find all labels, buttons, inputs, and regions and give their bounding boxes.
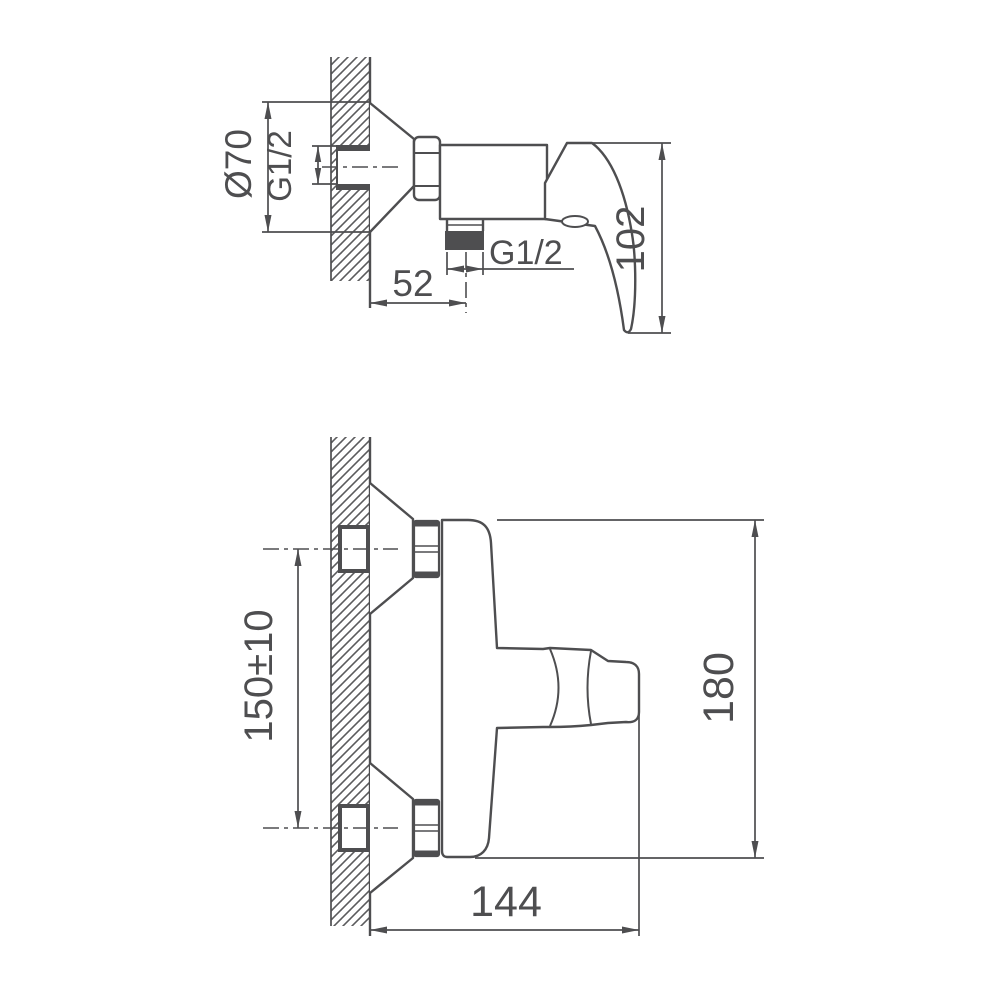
label-overall-height: 180	[695, 652, 743, 724]
upper-hex-adapter	[414, 521, 439, 577]
hex-nut	[414, 137, 440, 200]
label-overall-depth: 144	[470, 878, 542, 926]
side-view: Ø70 G1/2 102 52	[218, 57, 671, 333]
dim-inlet-thread: G1/2	[261, 130, 338, 202]
label-handle-height: 102	[609, 206, 653, 273]
label-inlet-spacing: 150±10	[237, 609, 281, 742]
shower-outlet	[445, 219, 484, 250]
label-outlet-thread: G1/2	[489, 234, 563, 272]
front-view: 150±10 180 144	[237, 437, 764, 936]
wall-hatch	[331, 437, 370, 926]
label-inlet-thread: G1/2	[261, 130, 298, 202]
shower-mixer-dimension-drawing: Ø70 G1/2 102 52	[0, 0, 1000, 1000]
lower-hex-adapter	[414, 800, 439, 856]
technical-drawing-page: Ø70 G1/2 102 52	[0, 0, 1000, 1000]
mixer-body	[440, 145, 547, 219]
handle-screw-cover	[562, 216, 588, 227]
dim-inlet-spacing: 150±10	[237, 549, 302, 828]
label-outlet-offset: 52	[392, 263, 433, 304]
label-flange-diameter: Ø70	[218, 129, 259, 199]
mixer-body-front	[442, 520, 639, 857]
outlet-thread-block	[445, 231, 484, 250]
